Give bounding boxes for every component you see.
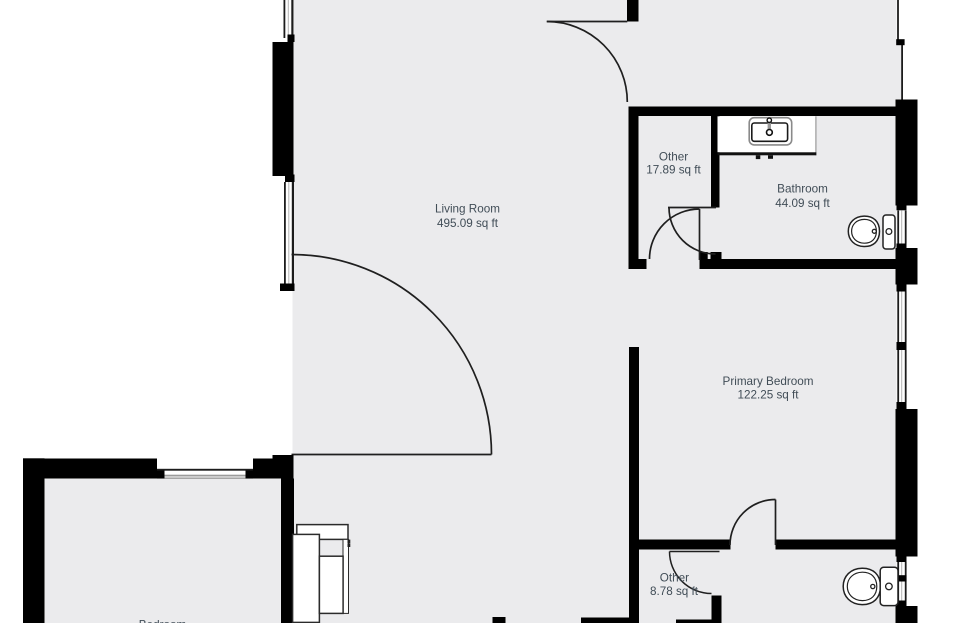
svg-text:8.78 sq ft: 8.78 sq ft (650, 585, 699, 598)
svg-text:Primary Bedroom: Primary Bedroom (723, 375, 814, 388)
svg-text:17.89 sq ft: 17.89 sq ft (646, 164, 701, 177)
svg-text:Other: Other (659, 151, 688, 164)
svg-text:Bedroom: Bedroom (139, 619, 186, 623)
svg-text:122.25 sq ft: 122.25 sq ft (737, 389, 799, 402)
svg-text:Bathroom: Bathroom (777, 183, 828, 196)
svg-text:495.09 sq ft: 495.09 sq ft (437, 217, 499, 230)
svg-text:Living Room: Living Room (435, 203, 500, 216)
svg-text:44.09 sq ft: 44.09 sq ft (775, 197, 830, 210)
svg-text:Other: Other (660, 572, 689, 585)
